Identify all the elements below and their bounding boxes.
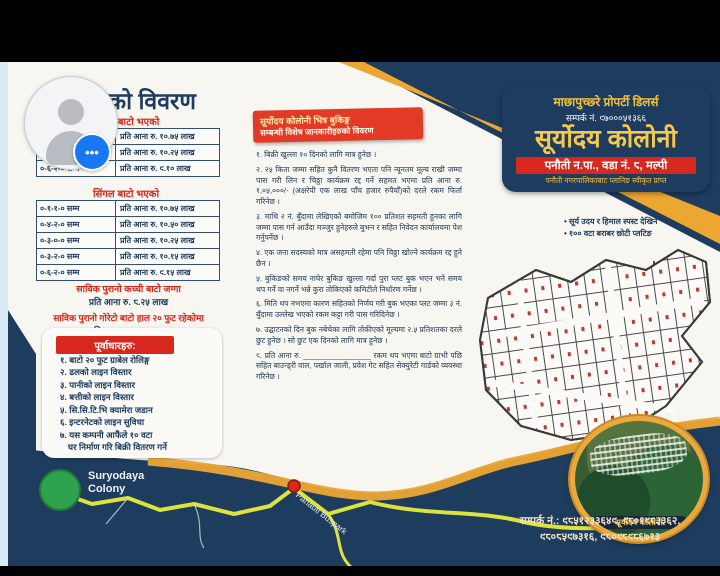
plot-rate: प्रति आना रु. १०.७५ लाख: [116, 129, 219, 144]
infra-item: घर निर्माण गरि बिक्री वितरण गर्ने: [60, 441, 167, 453]
contact-numbers: सम्पर्क नं.: ९८५१२३३६४९, ९८०१९८३३६२, ९८०…: [478, 514, 720, 546]
terms-item: ३. माथि २ नं. बुँदामा लेखिएको बमोजिम १००…: [256, 212, 462, 244]
aerial-houses-texture: [588, 429, 689, 480]
plot-range: ०-६-२-० सम्म: [37, 265, 116, 280]
table-row: ०-६-२-० सम्म प्रति आना रु. ९.१५ लाख: [37, 264, 219, 280]
feature-bullets: • सूर्य उदय र हिमाल स्पस्ट देखिने • १०० …: [564, 216, 714, 240]
plot-rate: प्रति आना रु. १०.२५ लाख: [116, 145, 219, 160]
note2-heading: साविक पुरानो गोरेटो बाटो हाल २० फुट रहेक…: [16, 311, 241, 324]
infra-item: ४. बत्तीको लाइन विस्तार: [60, 391, 167, 403]
note1-rate: प्रति आना रु. ८.२५ लाख: [26, 295, 231, 308]
infra-item: ७. यस कम्पनी आफैंले १० वटा: [60, 429, 167, 441]
middle-header-box: सूर्योदय कोलोनी भित्र बुकिङ्ग सम्बन्धी व…: [253, 107, 424, 143]
video-frame: जग्गाको विवरण दोहोरी बाटो भएको ०-४-०-० स…: [0, 0, 720, 576]
plot-range: ०-१-१-० सम्म: [37, 201, 116, 216]
middle-header-line2: सम्बन्धी विशेष जानकारीहरुको विवरण: [260, 124, 416, 138]
colony-address: पनौती न.पा., वडा नं. ८, मल्पी: [516, 157, 696, 174]
table-row: ०-३-२-० सम्म प्रति आना रु. १०.१५ लाख: [37, 248, 219, 264]
terms-item: ५. बुकिङको समय नाघेर बुकिङ खुल्ला गर्दा …: [256, 274, 462, 296]
plot-range: ०-४-२-० सम्म: [37, 217, 116, 232]
dealer-name: माछापुच्छ्रे प्रोपर्टी डिलर्स: [508, 93, 704, 110]
colony-brand-name: सूर्योदय कोलोनी: [508, 126, 704, 154]
dealer-contact: सम्पर्क नं. ९७०००५१३६६: [508, 111, 704, 124]
terms-item: ६. मिति थप नभएमा कारण सहितको निर्णय गरी …: [256, 299, 462, 321]
feature-bullet: • सूर्य उदय र हिमाल स्पस्ट देखिने: [564, 216, 714, 228]
infra-item: ६. इन्टरनेटको लाइन सुविधा: [60, 416, 167, 428]
plot-rate: प्रति आना रु. ९.१५ लाख: [116, 265, 219, 280]
plot-range: ०-३-२-० सम्म: [37, 249, 116, 264]
terms-item: ४. एक जना सदस्यको मात्र असहमती रहेमा पनि…: [256, 248, 462, 270]
table-row: ०-१-१-० सम्म प्रति आना रु. १०.७५ लाख: [37, 201, 219, 216]
infra-item: २. ढलको लाइन विस्तार: [60, 366, 167, 378]
terms-list: १. बिक्री खुल्ला १० दिनको लागि मात्र हुन…: [256, 150, 462, 387]
contact-line: ९८०८५९७३१६, ९८०९८९८६७१३: [478, 530, 720, 546]
top-letterbox-bar: [0, 0, 720, 62]
terms-item: २. २५ किता जम्मा सहित कुनै वितरण भएता पन…: [256, 165, 462, 208]
rate-table-2: ०-१-१-० सम्म प्रति आना रु. १०.७५ लाख ०-४…: [36, 200, 220, 281]
plot-range: ०-३-०-० सम्म: [37, 233, 116, 248]
plot-rate: प्रति आना रु. १०.१५ लाख: [116, 249, 219, 264]
section2-heading: सिंगल बाटो भएको: [36, 186, 216, 200]
chat-dots: •••: [85, 145, 99, 160]
infrastructure-heading: पूर्वाधारहरु:: [56, 336, 174, 354]
site-plan-map: [476, 240, 716, 452]
terms-item: १. बिक्री खुल्ला १० दिनको लागि मात्र हुन…: [256, 150, 462, 161]
chat-bubble-icon[interactable]: •••: [73, 133, 111, 171]
note1-heading: साविक पुरानो कच्ची बाटो जग्गा: [26, 282, 231, 295]
infrastructure-card: पूर्वाधारहरु: १. बाटो २० फुट ग्राबेल रोल…: [42, 328, 222, 458]
brand-header-panel: माछापुच्छ्रे प्रोपर्टी डिलर्स सम्पर्क नं…: [502, 86, 710, 192]
map-colony-label: Suryodaya Colony: [88, 470, 172, 496]
infra-item: ३. पानीको लाइन विस्तार: [60, 379, 167, 391]
plot-rate: प्रति आना रु. १०.७५ लाख: [116, 201, 219, 216]
table-row: ०-३-०-० सम्म प्रति आना रु. १०.२५ लाख: [37, 232, 219, 248]
plot-rate: प्रति आना रु. १०.५० लाख: [116, 217, 219, 232]
plot-rate: प्रति आना रु. १०.२५ लाख: [116, 233, 219, 248]
infra-item: ५. सि.सि.टि.भि क्यामेरा जडान: [60, 404, 167, 416]
avatar-person-icon: [58, 99, 84, 125]
infra-item: १. बाटो २० फुट ग्राबेल रोलिङ्ग: [60, 354, 167, 366]
plot-rate: प्रति आना रु. ९.१० लाख: [116, 161, 219, 176]
planning-approval-note: पनौती नगरपालिकाबाट प्लानिङ स्वीकृत प्राप…: [508, 176, 704, 186]
terms-item: ७. उद्घाटनको दिन बुक नबेचेका लागि तोकीएक…: [256, 325, 462, 347]
bottom-letterbox-bar: [0, 566, 720, 576]
terms-item: ८. प्रति आना रु. ________________ रकम थप…: [256, 351, 462, 383]
contact-line: सम्पर्क नं.: ९८५१२३३६४९, ९८०१९८३३६२,: [478, 514, 720, 530]
feature-bullet: • १०० वटा बराबर छोटी प्लटिङ: [564, 228, 714, 240]
table-row: ०-४-२-० सम्म प्रति आना रु. १०.५० लाख: [37, 216, 219, 232]
